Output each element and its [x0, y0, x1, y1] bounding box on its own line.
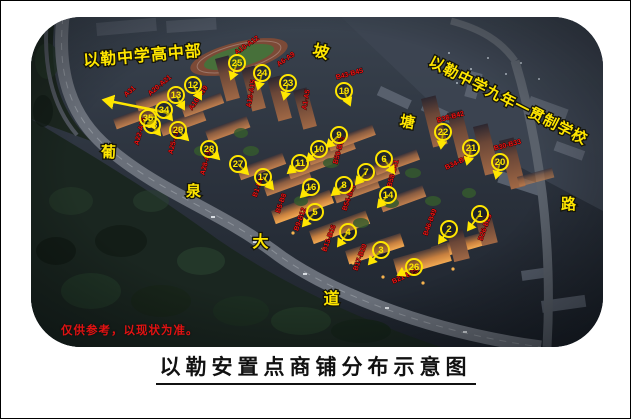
- svg-text:20: 20: [495, 157, 506, 168]
- document-page: A31A20-A21A16-A19A10-A12A13-A15A6-A9A1-A…: [0, 0, 631, 419]
- svg-text:3: 3: [378, 245, 383, 256]
- svg-text:11: 11: [295, 158, 306, 169]
- svg-text:26: 26: [409, 262, 420, 273]
- disclaimer-text: 仅供参考，以现状为准。: [61, 322, 199, 338]
- svg-text:6: 6: [381, 154, 386, 165]
- svg-text:12: 12: [188, 80, 199, 91]
- place-label: 路: [561, 195, 577, 213]
- svg-text:28: 28: [204, 144, 215, 155]
- svg-text:29: 29: [173, 125, 184, 136]
- svg-text:27: 27: [233, 159, 244, 170]
- svg-text:8: 8: [341, 180, 346, 191]
- svg-text:13: 13: [171, 90, 182, 101]
- svg-text:23: 23: [283, 78, 294, 89]
- svg-text:14: 14: [383, 190, 394, 201]
- svg-text:34: 34: [159, 105, 170, 116]
- svg-text:9: 9: [336, 130, 341, 141]
- caption-title: 以勒安置点商铺分布示意图: [156, 351, 476, 385]
- place-label: 道: [323, 289, 340, 308]
- place-label: 泉: [185, 182, 202, 200]
- place-label: 大: [252, 232, 269, 251]
- svg-text:22: 22: [438, 127, 449, 138]
- svg-text:5: 5: [312, 207, 318, 218]
- svg-text:7: 7: [363, 167, 368, 178]
- svg-text:10: 10: [314, 144, 325, 155]
- svg-text:2: 2: [446, 224, 451, 235]
- svg-text:19: 19: [339, 86, 350, 97]
- svg-text:21: 21: [466, 143, 477, 154]
- svg-text:4: 4: [345, 227, 351, 238]
- svg-text:16: 16: [306, 182, 317, 193]
- site-map-canvas: A31A20-A21A16-A19A10-A12A13-A15A6-A9A1-A…: [31, 17, 603, 347]
- svg-text:24: 24: [257, 68, 268, 79]
- place-label: 葡: [100, 143, 117, 161]
- svg-text:25: 25: [232, 58, 243, 69]
- place-label: 塘: [398, 112, 417, 133]
- svg-text:1: 1: [477, 209, 483, 220]
- svg-text:35: 35: [143, 113, 154, 124]
- aerial-site-rendering: A31A20-A21A16-A19A10-A12A13-A15A6-A9A1-A…: [31, 17, 603, 347]
- caption-row: 以勒安置点商铺分布示意图: [1, 351, 630, 385]
- svg-text:17: 17: [258, 172, 269, 183]
